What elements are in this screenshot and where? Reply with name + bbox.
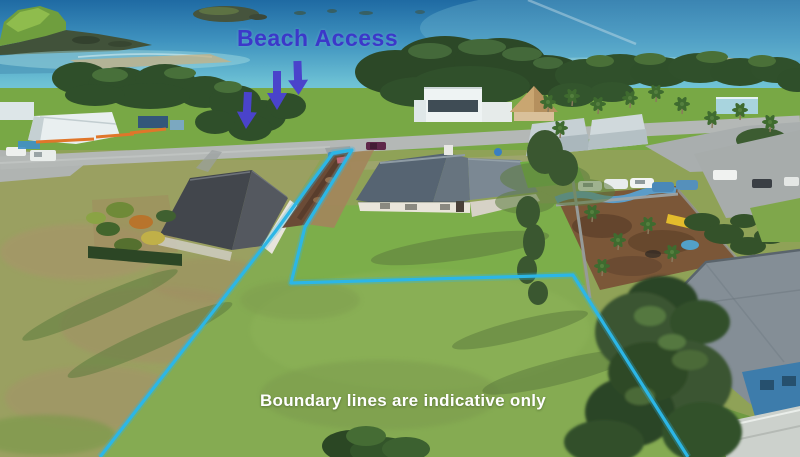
aerial-photo: Beach Access Boundary lines are indicati…: [0, 0, 800, 457]
boundary-disclaimer: Boundary lines are indicative only: [260, 391, 546, 411]
photo-canvas: [0, 0, 800, 457]
beach-access-label: Beach Access: [237, 25, 398, 52]
